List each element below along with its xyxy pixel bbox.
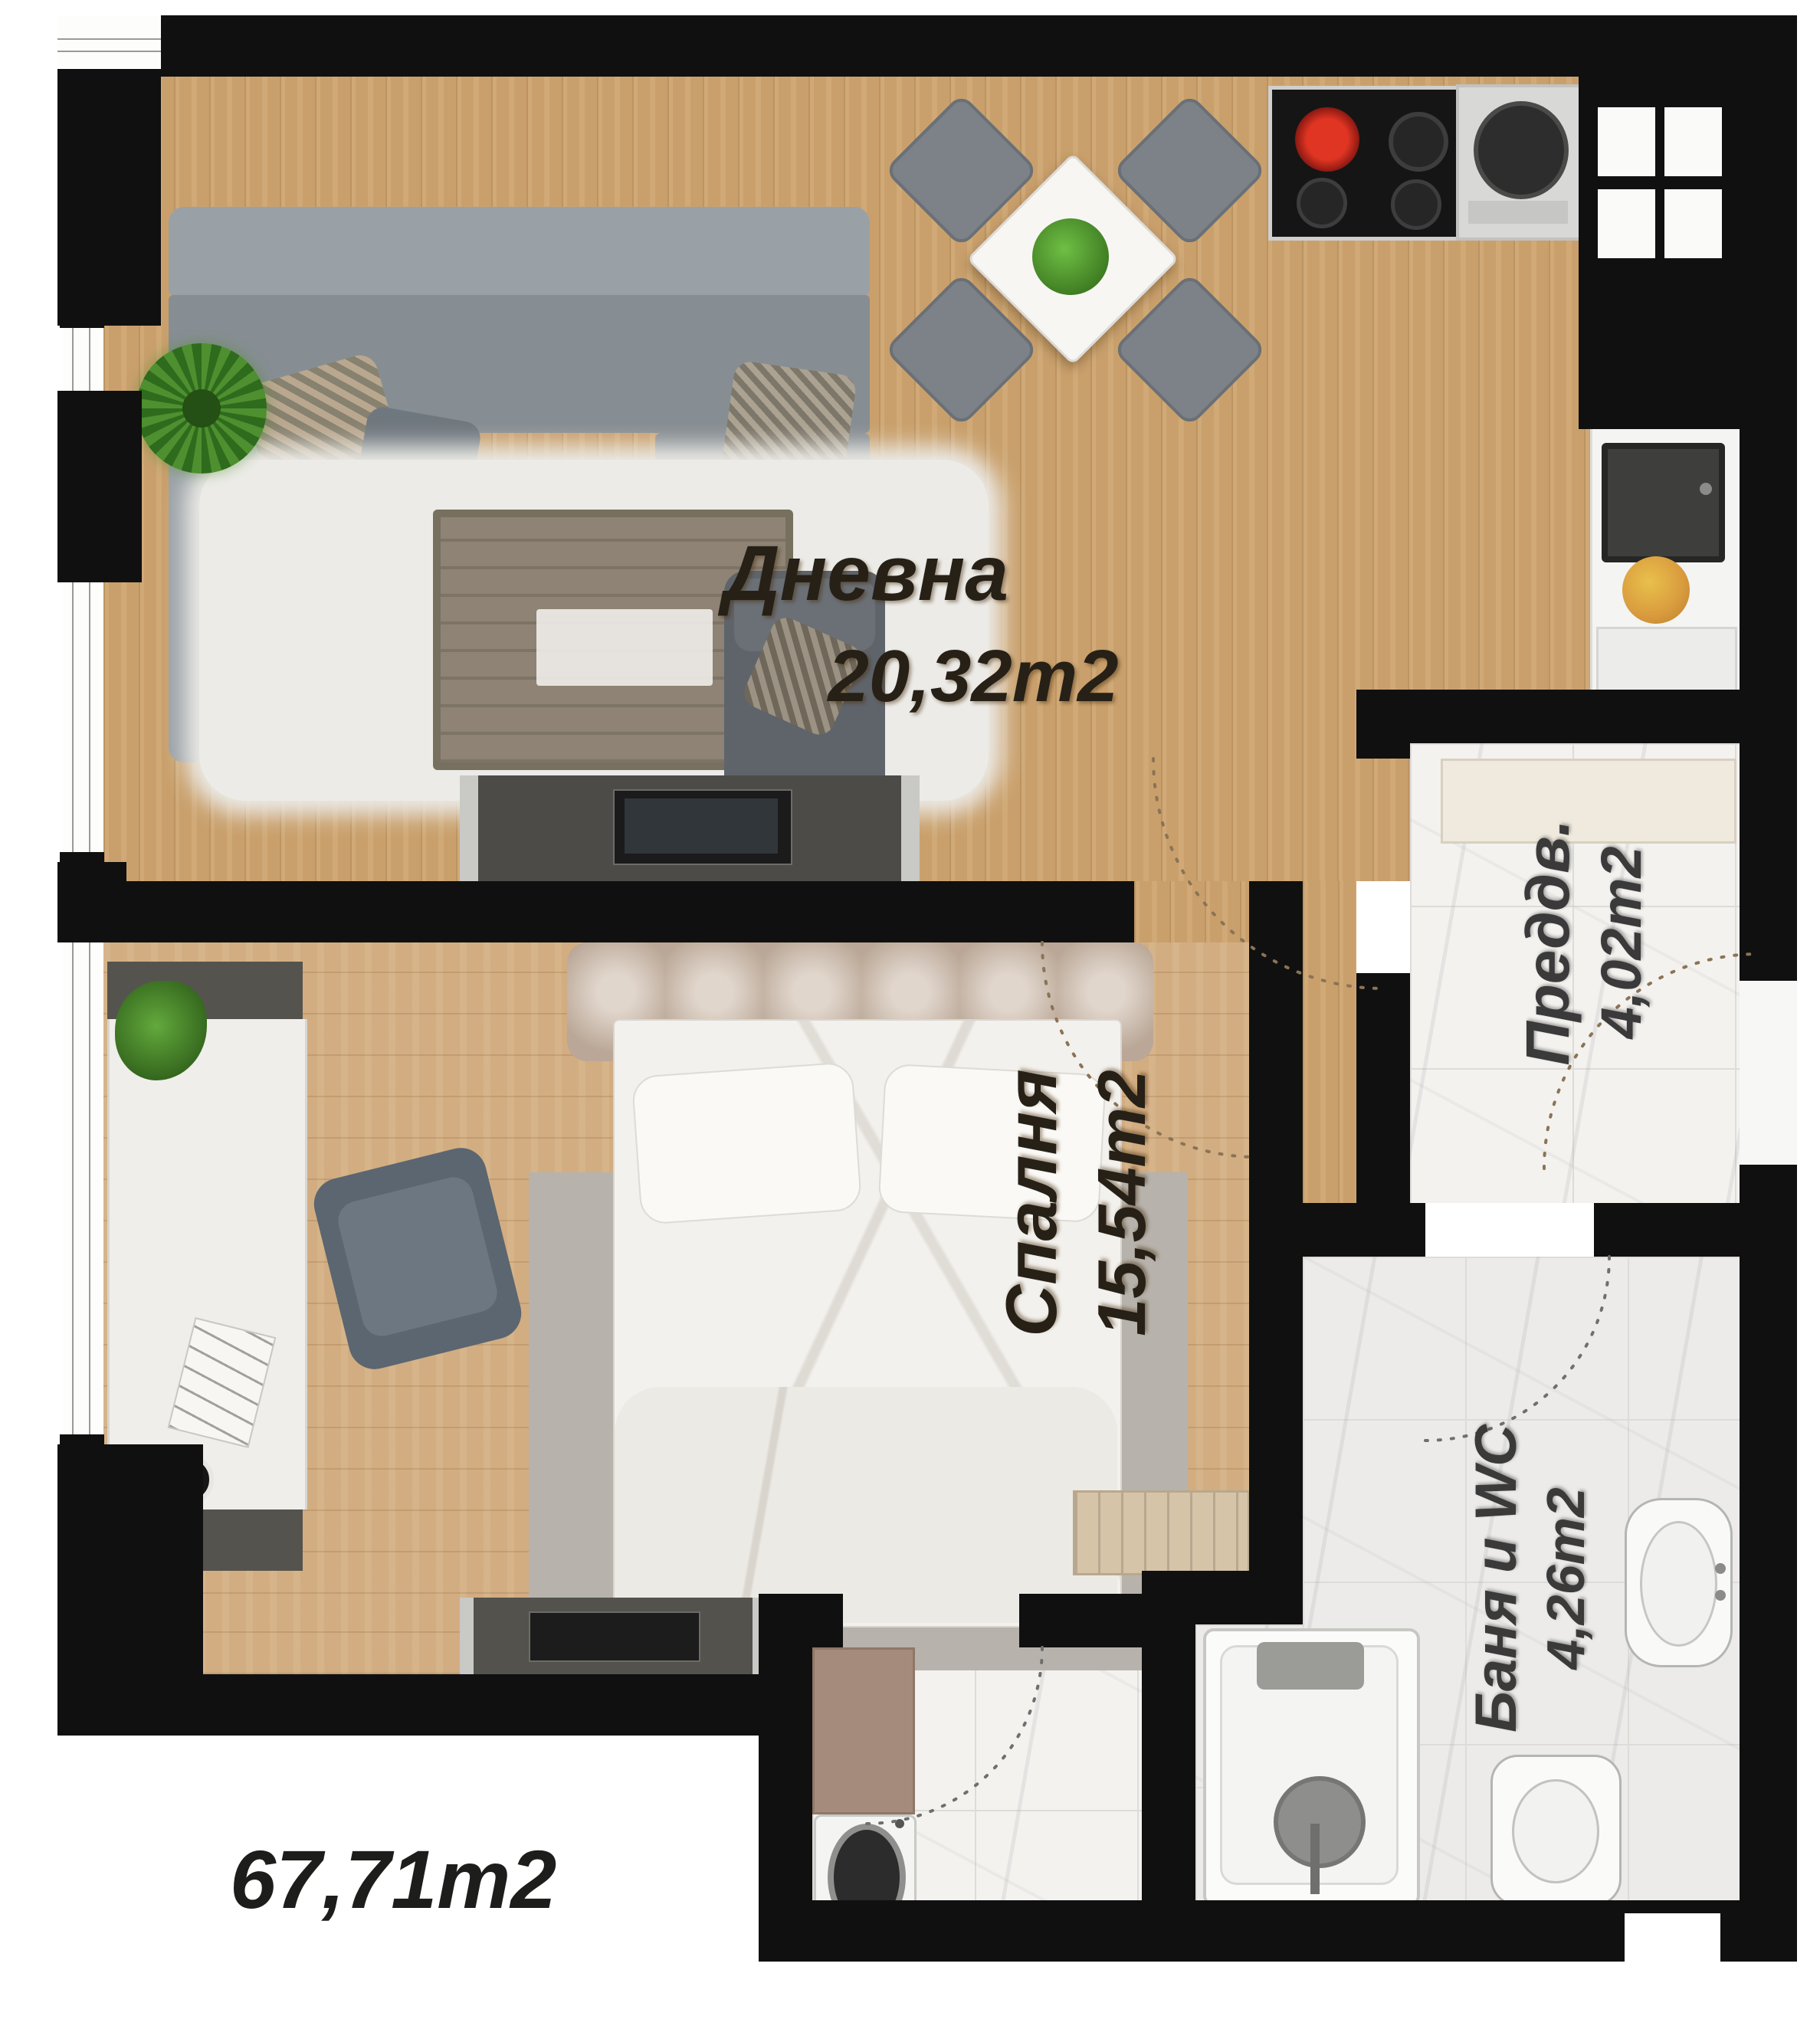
bedroom-name: Спалня	[985, 958, 1078, 1448]
bathroom-name: Баня и WC	[1460, 1310, 1533, 1847]
bathroom-area: 4,26m2	[1533, 1310, 1600, 1847]
hallway-area: 4,02m2	[1586, 713, 1658, 1172]
bedroom-area: 15,54m2	[1078, 958, 1166, 1448]
bedroom-label: Спалня 15,54m2	[985, 958, 1192, 1448]
hallway-name: Преддв.	[1510, 713, 1586, 1172]
hallway-label: Преддв. 4,02m2	[1510, 713, 1678, 1172]
floor-plan: Дневна 20,32m2 Спалня 15,54m2 Преддв. 4,…	[0, 0, 1820, 2029]
door-arc-bedroom-laundry	[866, 1647, 1042, 1824]
door-arc-living-hallway	[1153, 759, 1383, 988]
total-area-label: 67,71m2	[230, 1831, 556, 1927]
living-room-area: 20,32m2	[628, 634, 1318, 719]
bathroom-label: Баня и WC 4,26m2	[1460, 1310, 1621, 1847]
living-room-name: Дневна	[521, 529, 1211, 618]
